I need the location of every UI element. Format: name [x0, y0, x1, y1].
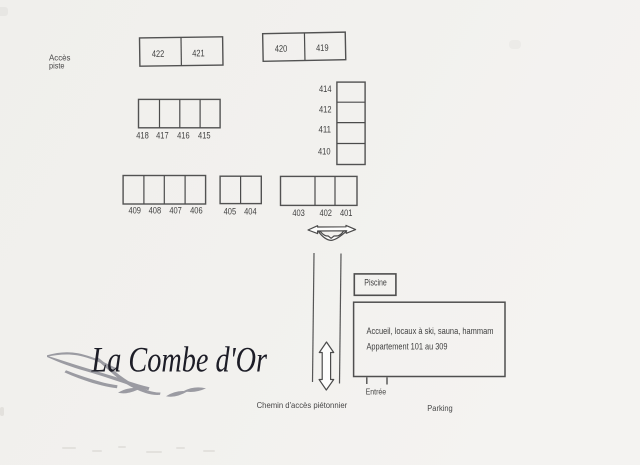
svg-text:422: 422 [152, 49, 165, 60]
svg-text:410: 410 [318, 147, 331, 158]
svg-text:420: 420 [275, 44, 288, 55]
svg-text:414: 414 [319, 84, 332, 95]
svg-text:416: 416 [177, 130, 190, 141]
svg-text:Parking: Parking [427, 404, 452, 413]
svg-text:404: 404 [244, 207, 257, 218]
svg-text:La Combe d'Or: La Combe d'Or [91, 340, 268, 380]
svg-text:piste: piste [49, 61, 65, 70]
svg-text:Appartement 101 au 309: Appartement 101 au 309 [367, 342, 448, 353]
svg-text:408: 408 [149, 205, 162, 216]
svg-text:407: 407 [169, 205, 182, 216]
svg-text:Piscine: Piscine [364, 277, 387, 288]
svg-text:411: 411 [319, 125, 332, 136]
svg-text:409: 409 [128, 205, 141, 216]
svg-text:403: 403 [292, 208, 305, 219]
svg-text:401: 401 [340, 208, 353, 219]
svg-text:Entrée: Entrée [366, 388, 387, 397]
svg-text:417: 417 [156, 130, 169, 141]
svg-text:405: 405 [224, 207, 237, 218]
svg-text:419: 419 [316, 43, 329, 54]
svg-text:Accueil, locaux à ski, sauna,: Accueil, locaux à ski, sauna, hammam [367, 326, 494, 337]
svg-text:402: 402 [319, 208, 332, 219]
svg-text:Chemin d'accès piétonnier: Chemin d'accès piétonnier [257, 401, 348, 410]
svg-text:406: 406 [190, 205, 203, 216]
svg-text:412: 412 [319, 105, 332, 116]
svg-text:418: 418 [136, 130, 149, 141]
svg-text:421: 421 [192, 48, 205, 59]
svg-text:415: 415 [198, 130, 211, 141]
